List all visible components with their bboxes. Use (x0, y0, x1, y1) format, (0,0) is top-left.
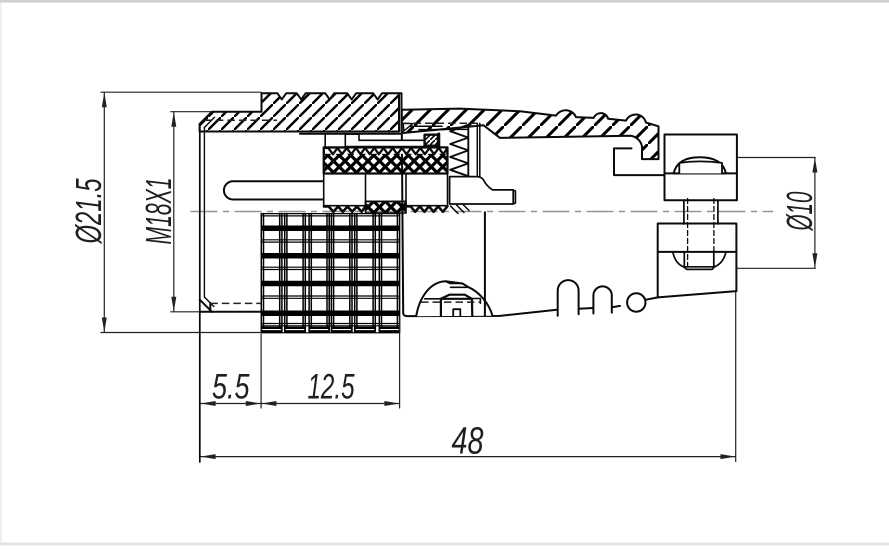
svg-text:Ø21.5: Ø21.5 (68, 178, 109, 244)
svg-text:Ø10: Ø10 (779, 192, 820, 232)
svg-text:M18X1: M18X1 (138, 178, 179, 245)
svg-text:48: 48 (452, 421, 484, 463)
svg-text:5.5: 5.5 (212, 368, 250, 407)
svg-text:12.5: 12.5 (308, 368, 355, 407)
